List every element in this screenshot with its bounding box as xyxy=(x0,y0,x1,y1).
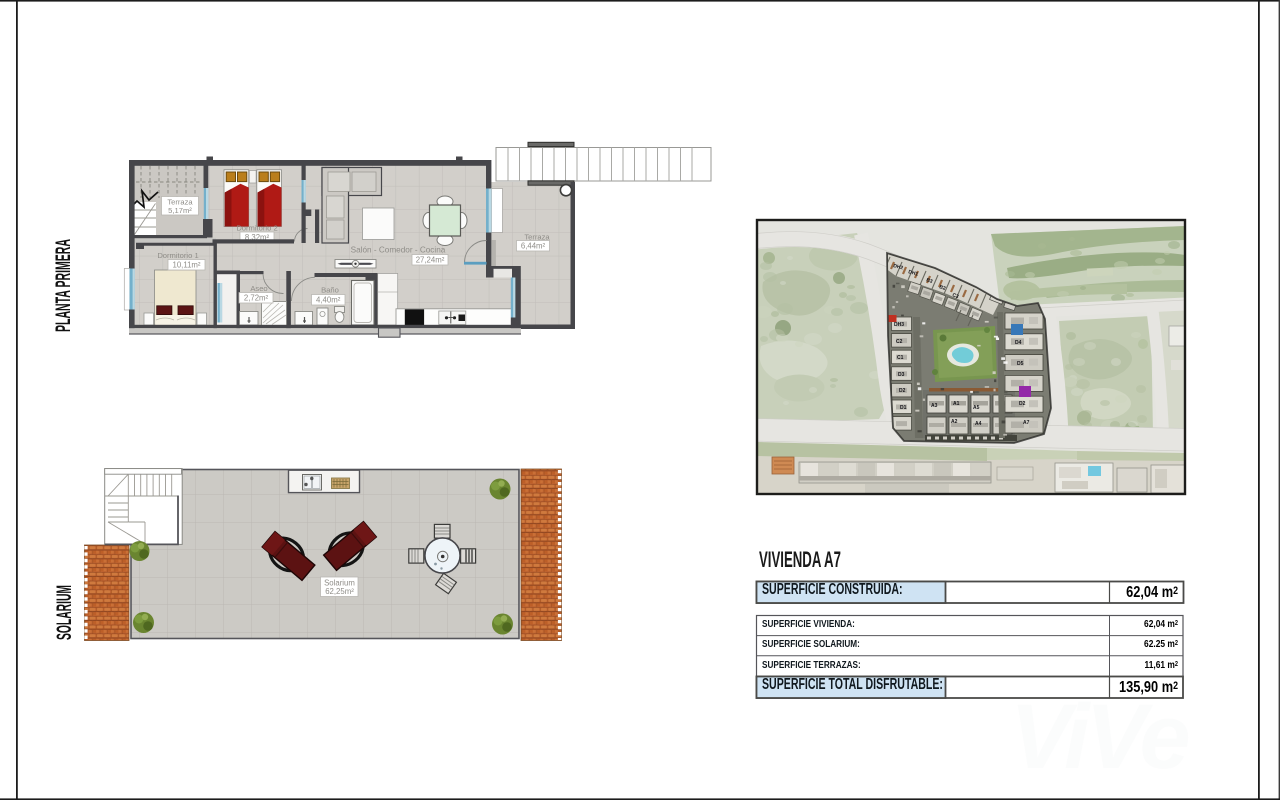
svg-text:A1: A1 xyxy=(953,401,960,407)
svg-text:A2: A2 xyxy=(951,419,958,425)
svg-text:D2: D2 xyxy=(1019,401,1026,407)
svg-text:D4: D4 xyxy=(1015,340,1022,346)
svg-text:Dormitorio 1: Dormitorio 1 xyxy=(157,251,198,260)
svg-text:A4: A4 xyxy=(975,421,982,427)
svg-text:D1: D1 xyxy=(900,405,907,411)
svg-text:Dormitorio 2: Dormitorio 2 xyxy=(236,224,277,233)
svg-text:2,72m²: 2,72m² xyxy=(244,294,269,303)
svg-text:4,40m²: 4,40m² xyxy=(316,296,341,305)
svg-text:A3: A3 xyxy=(931,403,938,409)
svg-text:C1: C1 xyxy=(897,355,904,361)
svg-text:D5: D5 xyxy=(1017,361,1024,367)
svg-text:A7: A7 xyxy=(1023,420,1030,426)
svg-text:PLANTA PRIMERA: PLANTA PRIMERA xyxy=(52,239,75,332)
svg-text:DH3: DH3 xyxy=(894,322,904,328)
svg-text:D2: D2 xyxy=(899,388,906,394)
svg-text:D3: D3 xyxy=(898,372,905,378)
svg-text:ViVe: ViVe xyxy=(1010,686,1188,788)
svg-text:10,11m²: 10,11m² xyxy=(172,261,200,270)
svg-text:C2: C2 xyxy=(896,339,903,345)
svg-text:Aseo: Aseo xyxy=(250,284,267,293)
svg-text:SOLARIUM: SOLARIUM xyxy=(53,585,76,640)
svg-text:5,17m²: 5,17m² xyxy=(168,206,192,215)
svg-text:6,44m²: 6,44m² xyxy=(521,242,546,251)
svg-text:27,24m²: 27,24m² xyxy=(416,256,445,265)
svg-text:62,25m²: 62,25m² xyxy=(325,587,354,596)
svg-text:A5: A5 xyxy=(973,405,980,411)
svg-text:Baño: Baño xyxy=(321,286,339,295)
svg-text:Salón - Comedor - Cocina: Salón - Comedor - Cocina xyxy=(351,246,446,255)
